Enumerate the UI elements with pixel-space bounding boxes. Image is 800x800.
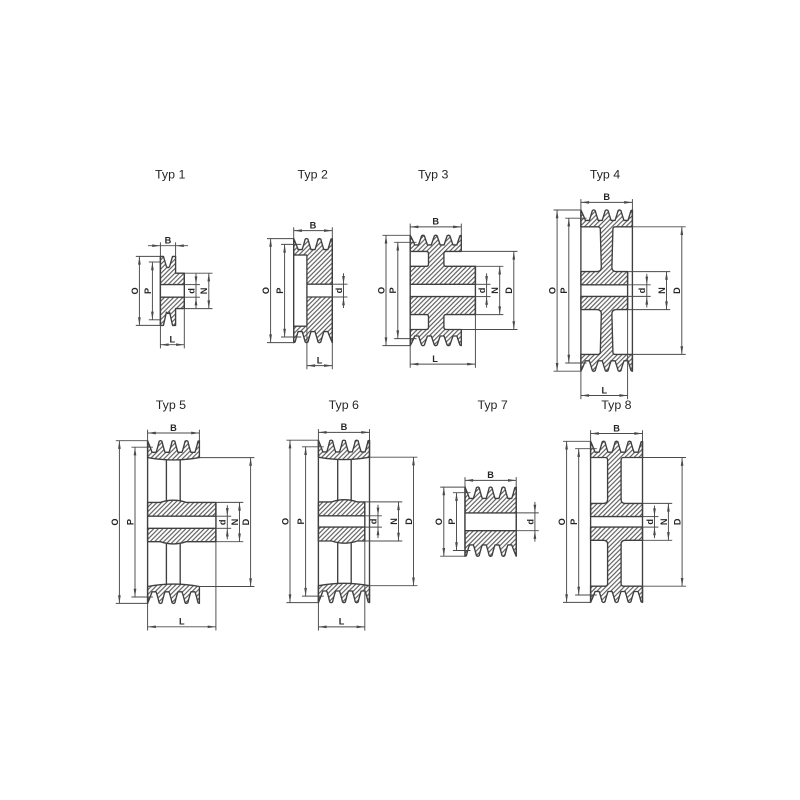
svg-text:D: D (241, 518, 251, 525)
svg-text:d: d (525, 519, 535, 525)
svg-text:d: d (368, 519, 378, 525)
svg-text:D: D (673, 518, 683, 525)
svg-text:L: L (339, 617, 345, 627)
svg-text:Typ 3: Typ 3 (418, 168, 448, 182)
svg-text:B: B (487, 470, 494, 480)
svg-text:d: d (218, 519, 228, 525)
svg-text:N: N (230, 518, 240, 525)
svg-text:Typ 5: Typ 5 (156, 398, 186, 412)
svg-text:B: B (310, 220, 317, 230)
svg-text:d: d (334, 288, 344, 294)
svg-text:D: D (672, 287, 682, 294)
svg-text:N: N (657, 287, 667, 294)
svg-text:P: P (125, 519, 135, 525)
svg-text:B: B (432, 217, 439, 227)
svg-text:B: B (341, 422, 348, 432)
svg-text:Typ 4: Typ 4 (590, 168, 620, 182)
svg-text:N: N (389, 518, 399, 525)
svg-text:B: B (165, 236, 172, 246)
svg-text:D: D (504, 287, 514, 294)
svg-text:L: L (317, 355, 323, 365)
svg-text:d: d (186, 288, 196, 294)
svg-text:L: L (170, 335, 176, 345)
svg-text:L: L (601, 385, 607, 395)
svg-text:P: P (296, 518, 306, 524)
svg-text:P: P (143, 288, 153, 294)
svg-text:L: L (432, 354, 438, 364)
svg-text:Typ 6: Typ 6 (329, 398, 359, 412)
svg-text:N: N (490, 287, 500, 294)
svg-text:N: N (659, 518, 669, 525)
svg-text:d: d (477, 288, 487, 294)
svg-text:O: O (110, 518, 120, 525)
svg-text:Typ 8: Typ 8 (601, 398, 631, 412)
svg-text:P: P (559, 288, 569, 294)
svg-text:P: P (569, 519, 579, 525)
svg-text:Typ 1: Typ 1 (155, 168, 185, 182)
svg-text:O: O (130, 287, 140, 294)
svg-text:O: O (376, 287, 386, 294)
svg-text:B: B (613, 423, 620, 433)
svg-text:O: O (261, 287, 271, 294)
svg-text:P: P (447, 519, 457, 525)
svg-text:D: D (404, 518, 414, 525)
svg-text:B: B (603, 192, 610, 202)
svg-text:O: O (557, 518, 567, 525)
svg-text:B: B (170, 423, 177, 433)
svg-text:O: O (548, 287, 558, 294)
svg-text:O: O (280, 518, 290, 525)
svg-text:L: L (179, 617, 185, 627)
svg-text:d: d (645, 519, 655, 525)
svg-text:P: P (388, 287, 398, 293)
svg-text:Typ 2: Typ 2 (298, 168, 328, 182)
svg-text:Typ 7: Typ 7 (477, 398, 507, 412)
svg-text:d: d (637, 288, 647, 294)
svg-text:N: N (199, 287, 209, 294)
svg-text:O: O (434, 518, 444, 525)
svg-text:P: P (275, 288, 285, 294)
